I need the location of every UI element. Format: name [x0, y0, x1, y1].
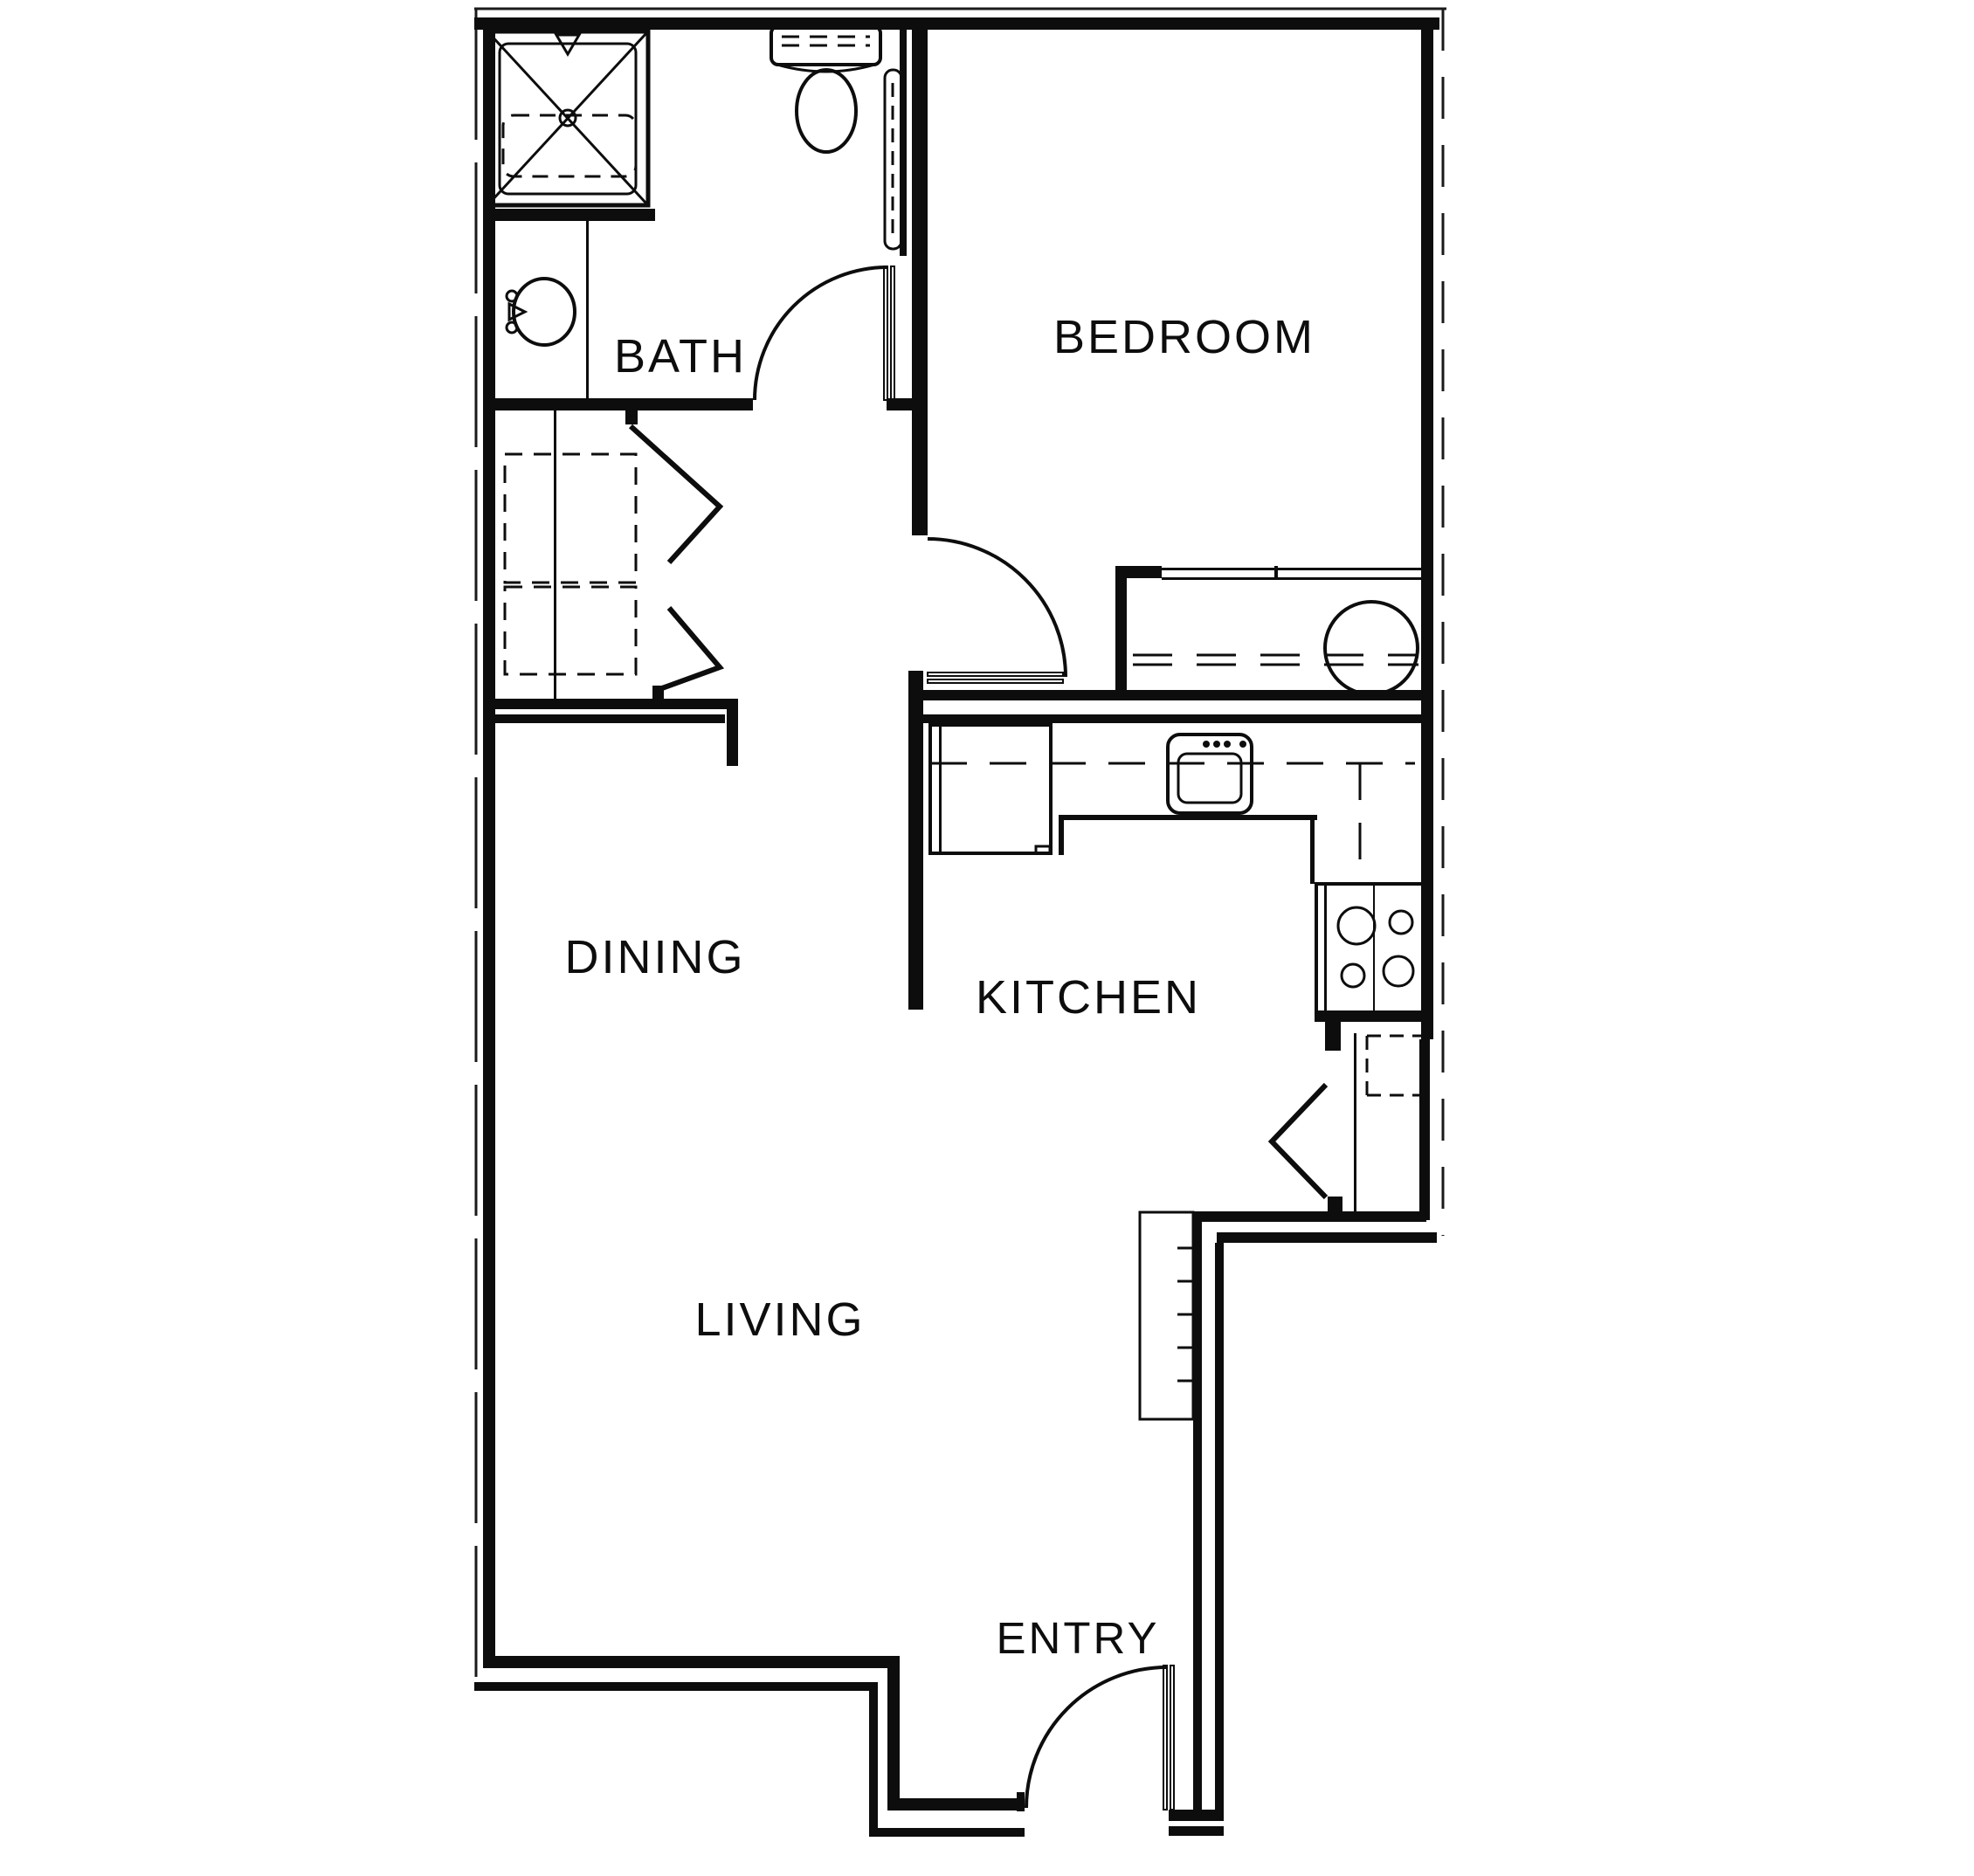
toilet	[771, 26, 880, 152]
floor-plan-drawing: BATH BEDROOM DINING KITCHEN LIVING ENTRY	[0, 0, 1974, 1876]
walls	[474, 17, 1439, 1837]
laundry-closet-bifold-doors	[631, 426, 720, 688]
bedroom-door	[928, 539, 1066, 683]
bath-label: BATH	[614, 330, 747, 383]
pantry-shelves	[1354, 1033, 1425, 1214]
pantry-bifold-door	[1272, 1085, 1326, 1197]
kitchen-label: KITCHEN	[976, 971, 1201, 1024]
living-label: LIVING	[694, 1293, 865, 1346]
stove	[1316, 884, 1424, 1017]
shower	[487, 31, 648, 205]
outer-boundary	[474, 9, 1446, 1686]
entry-door	[1026, 1666, 1174, 1810]
entry-label: ENTRY	[997, 1613, 1160, 1663]
bath-door	[755, 266, 894, 400]
bathroom-sink	[507, 221, 589, 400]
upper-cabinet-dashed-line	[930, 763, 1415, 880]
refrigerator	[930, 725, 1051, 853]
water-heater	[1325, 602, 1418, 694]
kitchen-sink	[1168, 735, 1252, 813]
kitchen-counter	[923, 714, 1421, 884]
stairs	[1140, 1212, 1193, 1419]
wall-cabinet	[885, 70, 901, 249]
floor-plan-page: BATH BEDROOM DINING KITCHEN LIVING ENTRY	[0, 0, 1974, 1876]
bedroom-label: BEDROOM	[1053, 311, 1315, 363]
bedroom-closet-sliding-doors	[1133, 566, 1421, 665]
dining-label: DINING	[565, 931, 746, 983]
washer-dryer-dashed-boxes	[505, 410, 636, 699]
